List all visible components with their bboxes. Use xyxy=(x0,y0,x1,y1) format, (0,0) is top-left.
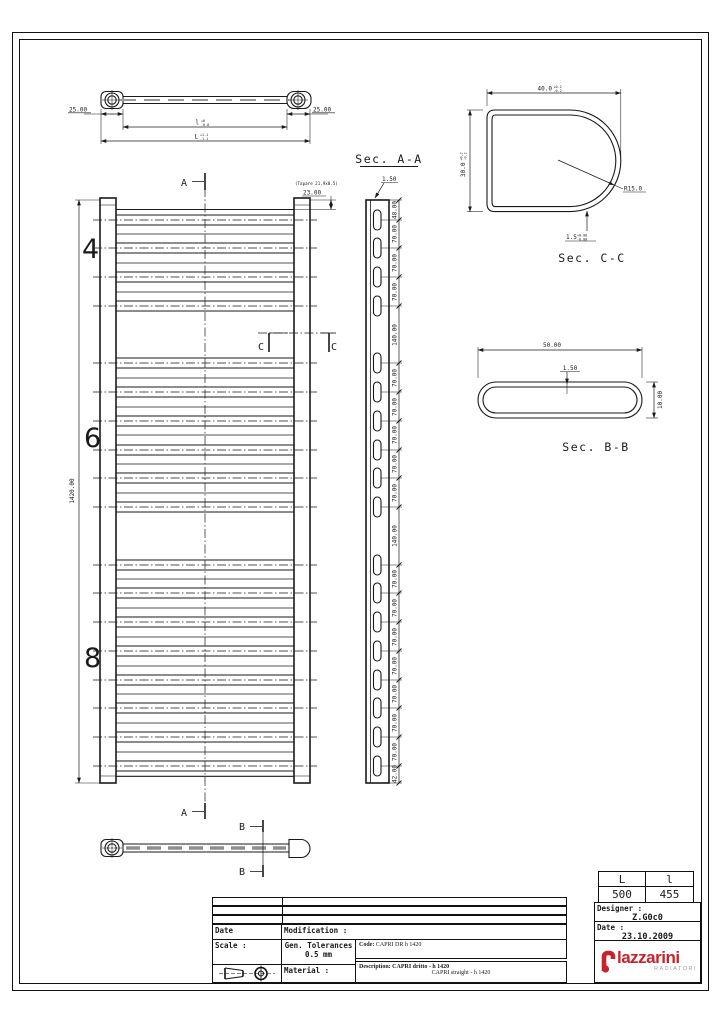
aa-dim: 70.00 xyxy=(392,657,399,675)
aa-dim: 70.00 xyxy=(392,254,399,272)
aa-dim: 70.00 xyxy=(392,484,399,502)
date-label: Date : xyxy=(597,923,698,932)
aa-dim: 70.00 xyxy=(392,685,399,703)
material-label: Material : xyxy=(284,966,329,975)
aa-dim: 70.00 xyxy=(392,455,399,473)
aa-dim: 140.00 xyxy=(392,525,399,547)
marker-b-bottom: B xyxy=(239,867,245,878)
section-cc: 40.0 +0.2 -0.2 30.0 +0.2 -0.2 R15.0 1.5 … xyxy=(459,85,646,265)
marker-a-bottom: A xyxy=(181,808,187,819)
aa-dim: 70.00 xyxy=(392,426,399,444)
marker-c-right: C xyxy=(331,342,337,353)
length-col-label: L xyxy=(619,873,626,886)
front-height-dim: 1420.00 xyxy=(69,478,76,504)
drawing-canvas: 25.00 25.00 l +0 -0.8 L +1.1 -1.1 1420.0… xyxy=(0,0,720,1019)
logo-wordmark: lazzarini xyxy=(617,949,697,966)
bb-width-dim: 50.00 xyxy=(543,342,561,349)
front-top-dim: 23.00 xyxy=(303,190,321,197)
top-view: 25.00 25.00 l +0 -0.8 L +1.1 -1.1 xyxy=(68,90,335,144)
modification-label: Modification : xyxy=(284,926,347,935)
cc-width-dim: 40.0 xyxy=(538,86,553,93)
section-bb-title: Sec. B-B xyxy=(562,440,629,454)
material-cell: Material : xyxy=(281,964,356,983)
section-bb: 50.00 1.50 10.00 Sec. B-B xyxy=(478,342,664,454)
revision-row-2 xyxy=(212,906,567,915)
designer-cell: Designer : Z.G0c0 xyxy=(594,902,701,922)
tolerances-value: 0.5 mm xyxy=(284,950,353,959)
scale-cell: Scale : xyxy=(212,939,282,965)
marker-a-top: A xyxy=(181,178,187,189)
section-aa-wall-dim: 1.50 xyxy=(382,176,397,183)
bb-height-dim: 10.00 xyxy=(657,391,664,409)
aa-dim: 70.00 xyxy=(392,398,399,416)
tolerances-label: Gen. Tolerances xyxy=(284,941,353,950)
cap-note: (Tapare 21.9x0.5) xyxy=(295,181,338,186)
aa-dim: 70.00 xyxy=(392,225,399,243)
aa-dim: 70.00 xyxy=(392,570,399,588)
cc-wall-tol-bot: -0.08 xyxy=(577,237,587,241)
code-value: CAPRI DR h 1420 xyxy=(376,942,422,948)
aa-dim: 70.00 xyxy=(392,283,399,301)
projection-cell xyxy=(212,964,282,983)
aa-dim: 140.00 xyxy=(392,324,399,346)
description-cell: Description: CAPRI dritto - h 1420 CAPRI… xyxy=(355,961,567,983)
cc-radius-dim: R15.0 xyxy=(624,186,642,193)
top-dim-right: 25.00 xyxy=(313,107,331,114)
lazzarini-logo: lazzarini RADIATORI xyxy=(617,949,697,972)
logo-cell: lazzarini RADIATORI xyxy=(594,940,701,983)
top-dim-outer: L xyxy=(194,134,198,141)
group-label-6: 6 xyxy=(84,423,101,454)
length-value: 500 xyxy=(612,888,632,901)
interaxis-col-label: l xyxy=(666,873,673,886)
interaxis-value-cell: 455 xyxy=(645,886,694,903)
interaxis-col-header: l xyxy=(645,871,694,887)
date-column-label: Date xyxy=(215,926,233,935)
marker-b-top: B xyxy=(239,822,245,833)
length-value-cell: 500 xyxy=(598,886,646,903)
date-column-header: Date xyxy=(212,924,282,940)
group-label-4: 4 xyxy=(82,234,99,265)
revision-row-1 xyxy=(212,897,567,906)
front-view: 1420.00 4 6 8 A A (Tapare 21.9x0.5) 23.0… xyxy=(69,173,338,819)
aa-dim: 42.00 xyxy=(392,765,399,783)
section-aa: Sec. A-A 1.50 48.00 70.00 70.00 70.00 14… xyxy=(355,152,422,786)
scale-label: Scale : xyxy=(215,941,247,950)
aa-dim: 70.00 xyxy=(392,369,399,387)
date-cell: Date : 23.10.2009 xyxy=(594,921,701,941)
drawing-sheet: 25.00 25.00 l +0 -0.8 L +1.1 -1.1 1420.0… xyxy=(0,0,720,1019)
cc-wall-dim: 1.5 xyxy=(566,234,577,241)
top-dim-outer-tol-bot: -1.1 xyxy=(200,137,208,141)
modification-cell: Modification : xyxy=(281,924,567,940)
cc-width-tol-bot: -0.2 xyxy=(554,89,562,93)
projection-symbol-icon xyxy=(213,965,281,982)
cc-height-dim: 30.0 xyxy=(460,162,467,177)
aa-dim: 70.00 xyxy=(392,714,399,732)
description-value-english: CAPRI straight - h 1420 xyxy=(359,970,563,976)
designer-label: Designer : xyxy=(597,904,698,913)
marker-c-left: C xyxy=(258,342,264,353)
length-col-header: L xyxy=(598,871,646,887)
aa-dim: 70.00 xyxy=(392,599,399,617)
aa-dim: 48.00 xyxy=(392,201,399,219)
aa-dim: 70.00 xyxy=(392,743,399,761)
top-dim-inner: l xyxy=(195,120,199,127)
top-dim-left: 25.00 xyxy=(69,107,87,114)
tolerances-cell: Gen. Tolerances 0.5 mm xyxy=(281,939,356,965)
group-label-8: 8 xyxy=(84,643,101,674)
section-aa-title: Sec. A-A xyxy=(355,152,422,166)
code-cell: Code: CAPRI DR h 1420 xyxy=(355,939,567,959)
description-label: Description: xyxy=(359,964,391,970)
aa-dim: 70.00 xyxy=(392,628,399,646)
top-dim-inner-tol-bot: -0.8 xyxy=(201,123,209,127)
bottom-view: B B xyxy=(101,820,310,878)
bb-wall-dim: 1.50 xyxy=(563,365,578,372)
cc-height-tol-bot: -0.2 xyxy=(464,152,468,160)
code-label: Code: xyxy=(359,942,374,948)
interaxis-value: 455 xyxy=(660,888,680,901)
revision-row-3 xyxy=(212,915,567,924)
section-cc-title: Sec. C-C xyxy=(558,251,625,265)
